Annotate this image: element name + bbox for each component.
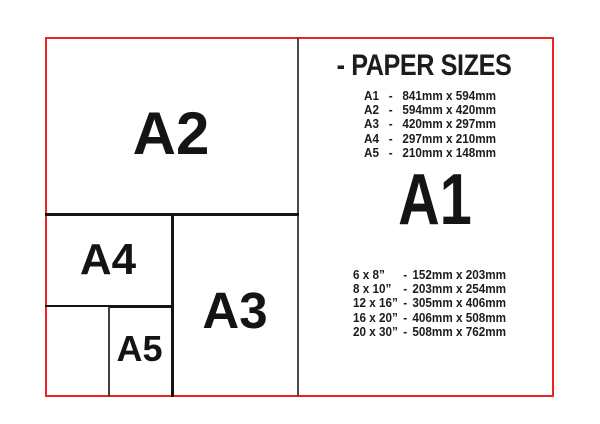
dash-separator: - [398, 268, 412, 282]
paper-sizes-infographic: A2 A4 A3 A5 - PAPER SIZES A1 - 841mm x 5… [0, 0, 600, 424]
size-row: A3 - 420mm x 297mm [352, 117, 496, 131]
paper-box-a2-label: A2 [133, 104, 210, 164]
size-dimensions: 152mm x 203mm [412, 268, 506, 282]
inch-size-list: 6 x 8” - 152mm x 203mm 8 x 10” - 203mm x… [353, 268, 506, 339]
dash-separator: - [379, 89, 402, 103]
size-row: A2 - 594mm x 420mm [352, 103, 496, 117]
a4-bottom-line-left [45, 305, 109, 307]
paper-box-a5-label: A5 [116, 331, 162, 367]
dash-separator: - [379, 146, 402, 160]
size-label: 6 x 8” [353, 268, 398, 282]
dash-separator: - [398, 325, 412, 339]
size-label: 8 x 10” [353, 282, 398, 296]
size-row: 20 x 30” - 508mm x 762mm [353, 325, 506, 339]
page-title: - PAPER SIZES [319, 49, 529, 83]
size-row: 16 x 20” - 406mm x 508mm [353, 311, 506, 325]
dash-separator: - [379, 117, 402, 131]
size-row: 8 x 10” - 203mm x 254mm [353, 282, 506, 296]
paper-box-a2: A2 [45, 46, 297, 222]
paper-box-a3: A3 [173, 220, 297, 401]
size-dimensions: 297mm x 210mm [402, 132, 496, 146]
size-label: A1 [352, 89, 379, 103]
size-row: 12 x 16” - 305mm x 406mm [353, 296, 506, 310]
size-label: 20 x 30” [353, 325, 398, 339]
dash-separator: - [398, 296, 412, 310]
size-row: A4 - 297mm x 210mm [352, 132, 496, 146]
dash-separator: - [398, 282, 412, 296]
size-label: A3 [352, 117, 379, 131]
paper-box-a4-label: A4 [80, 238, 136, 282]
size-dimensions: 203mm x 254mm [412, 282, 506, 296]
featured-size-label: A1 [381, 164, 488, 236]
size-row: A5 - 210mm x 148mm [352, 146, 496, 160]
a-size-list: A1 - 841mm x 594mm A2 - 594mm x 420mm A3… [352, 89, 496, 160]
size-row: A1 - 841mm x 594mm [352, 89, 496, 103]
size-dimensions: 841mm x 594mm [402, 89, 496, 103]
size-dimensions: 210mm x 148mm [402, 146, 496, 160]
size-label: A2 [352, 103, 379, 117]
column-divider-line [297, 37, 299, 397]
dash-separator: - [398, 311, 412, 325]
size-dimensions: 406mm x 508mm [412, 311, 506, 325]
size-dimensions: 594mm x 420mm [402, 103, 496, 117]
size-label: A5 [352, 146, 379, 160]
size-label: 12 x 16” [353, 296, 398, 310]
size-dimensions: 420mm x 297mm [402, 117, 496, 131]
dash-separator: - [379, 132, 402, 146]
size-dimensions: 508mm x 762mm [412, 325, 506, 339]
paper-box-a5: A5 [108, 304, 171, 394]
size-label: A4 [352, 132, 379, 146]
size-label: 16 x 20” [353, 311, 398, 325]
paper-box-a3-label: A3 [202, 285, 267, 336]
size-dimensions: 305mm x 406mm [412, 296, 506, 310]
paper-box-a4: A4 [45, 215, 171, 305]
dash-separator: - [379, 103, 402, 117]
size-row: 6 x 8” - 152mm x 203mm [353, 268, 506, 282]
